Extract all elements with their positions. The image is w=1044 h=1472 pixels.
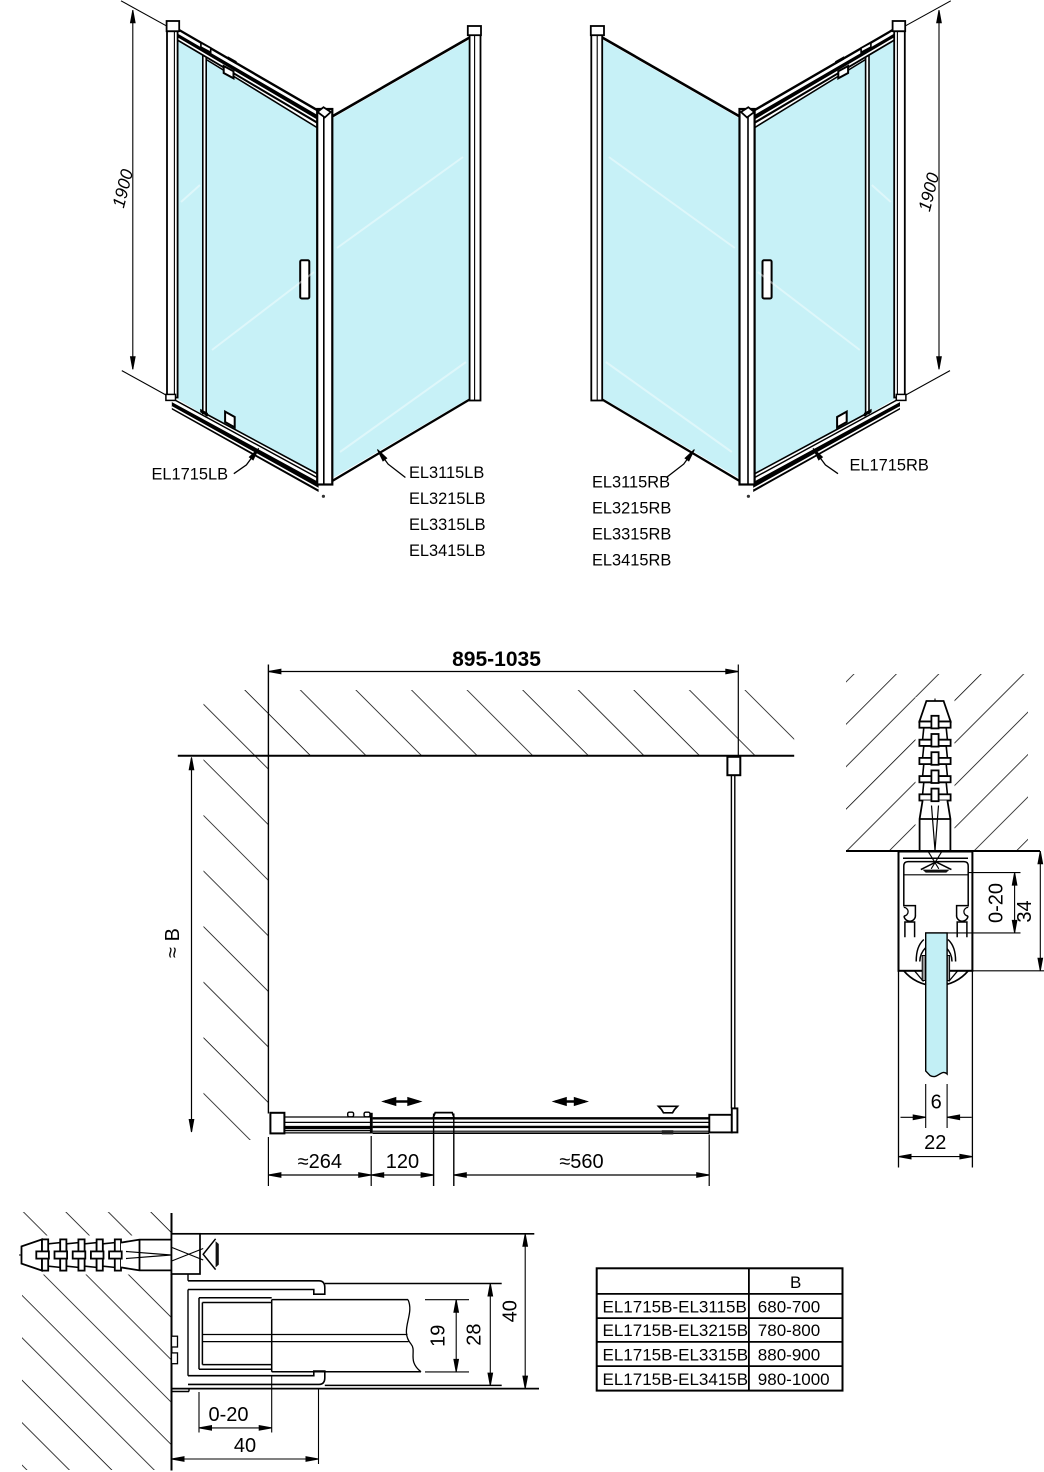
svg-text:EL1715LB: EL1715LB [151, 466, 228, 484]
svg-text:28: 28 [463, 1323, 485, 1345]
svg-text:EL3315LB: EL3315LB [409, 516, 486, 534]
svg-text:EL1715B-EL3415B: EL1715B-EL3415B [603, 1370, 749, 1389]
svg-text:EL3315RB: EL3315RB [592, 526, 671, 544]
svg-text:EL1715B-EL3215B: EL1715B-EL3215B [603, 1321, 749, 1340]
svg-text:EL1715RB: EL1715RB [850, 457, 929, 475]
svg-text:EL3215RB: EL3215RB [592, 500, 671, 518]
svg-text:EL3415RB: EL3415RB [592, 552, 671, 570]
svg-text:EL3415LB: EL3415LB [409, 542, 486, 560]
svg-text:40: 40 [500, 1300, 522, 1322]
svg-text:≈560: ≈560 [559, 1151, 603, 1173]
svg-text:22: 22 [924, 1132, 946, 1154]
svg-text:EL3115RB: EL3115RB [592, 474, 670, 492]
svg-text:EL1715B-EL3115B: EL1715B-EL3115B [603, 1297, 747, 1316]
svg-text:680-700: 680-700 [758, 1297, 820, 1316]
svg-text:≈264: ≈264 [298, 1151, 342, 1173]
svg-text:120: 120 [386, 1151, 419, 1173]
svg-text:980-1000: 980-1000 [758, 1370, 830, 1389]
svg-text:880-900: 880-900 [758, 1345, 820, 1364]
svg-text:34: 34 [1014, 900, 1036, 922]
svg-text:0-20: 0-20 [208, 1404, 248, 1426]
svg-text:19: 19 [427, 1325, 449, 1347]
svg-text:0-20: 0-20 [986, 883, 1008, 923]
svg-text:895-1035: 895-1035 [452, 648, 541, 671]
svg-text:780-800: 780-800 [758, 1321, 820, 1340]
svg-text:40: 40 [234, 1435, 256, 1457]
svg-text:EL3215LB: EL3215LB [409, 490, 486, 508]
svg-text:B: B [790, 1273, 801, 1292]
svg-text:EL1715B-EL3315B: EL1715B-EL3315B [603, 1345, 749, 1364]
svg-text:6: 6 [931, 1092, 942, 1114]
svg-text:EL3115LB: EL3115LB [409, 464, 484, 482]
svg-text:≈ B: ≈ B [162, 928, 184, 958]
